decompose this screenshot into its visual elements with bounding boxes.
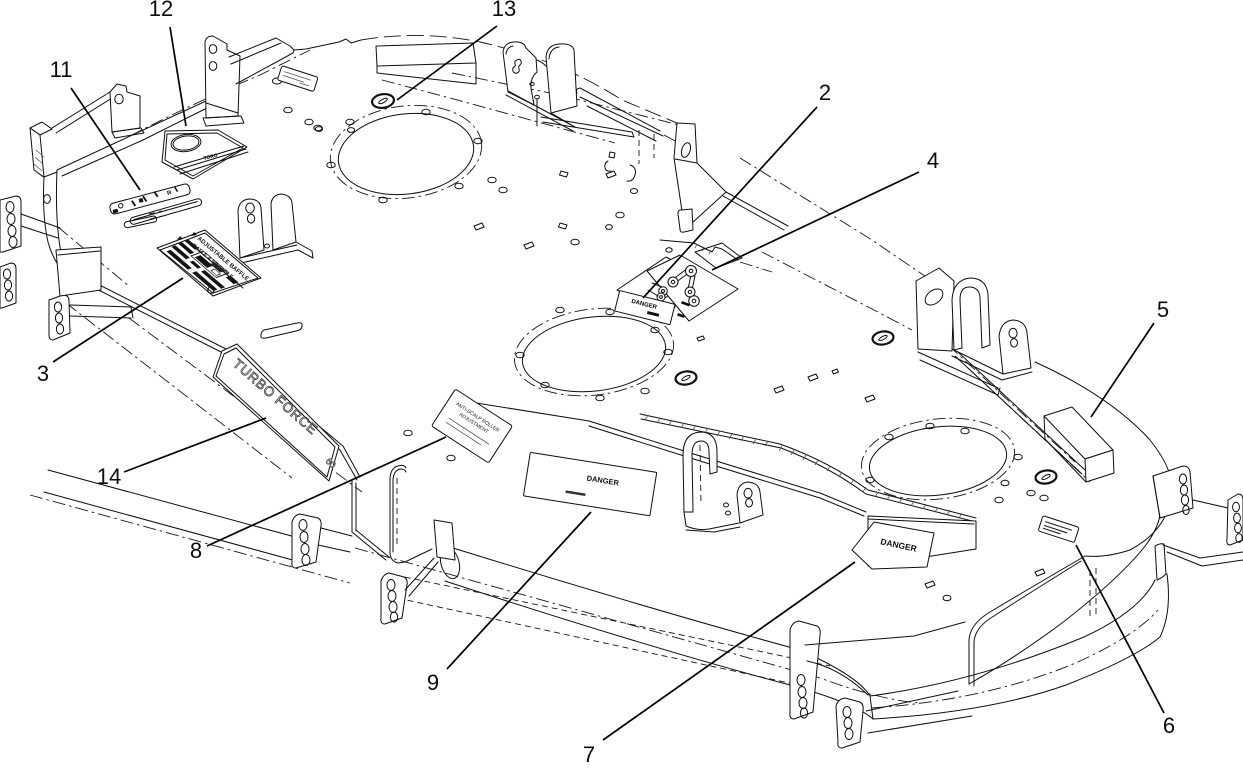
svg-text:12: 12	[149, 0, 173, 21]
svg-text:4: 4	[927, 148, 939, 173]
svg-text:11: 11	[50, 57, 73, 82]
svg-text:2: 2	[819, 80, 831, 105]
svg-text:13: 13	[492, 0, 516, 21]
svg-text:9: 9	[427, 670, 439, 695]
svg-text:6: 6	[1163, 713, 1175, 738]
svg-text:14: 14	[97, 464, 121, 489]
svg-text:8: 8	[190, 538, 202, 563]
svg-text:7: 7	[583, 742, 595, 767]
svg-text:3: 3	[37, 361, 49, 386]
svg-text:5: 5	[1157, 297, 1169, 322]
